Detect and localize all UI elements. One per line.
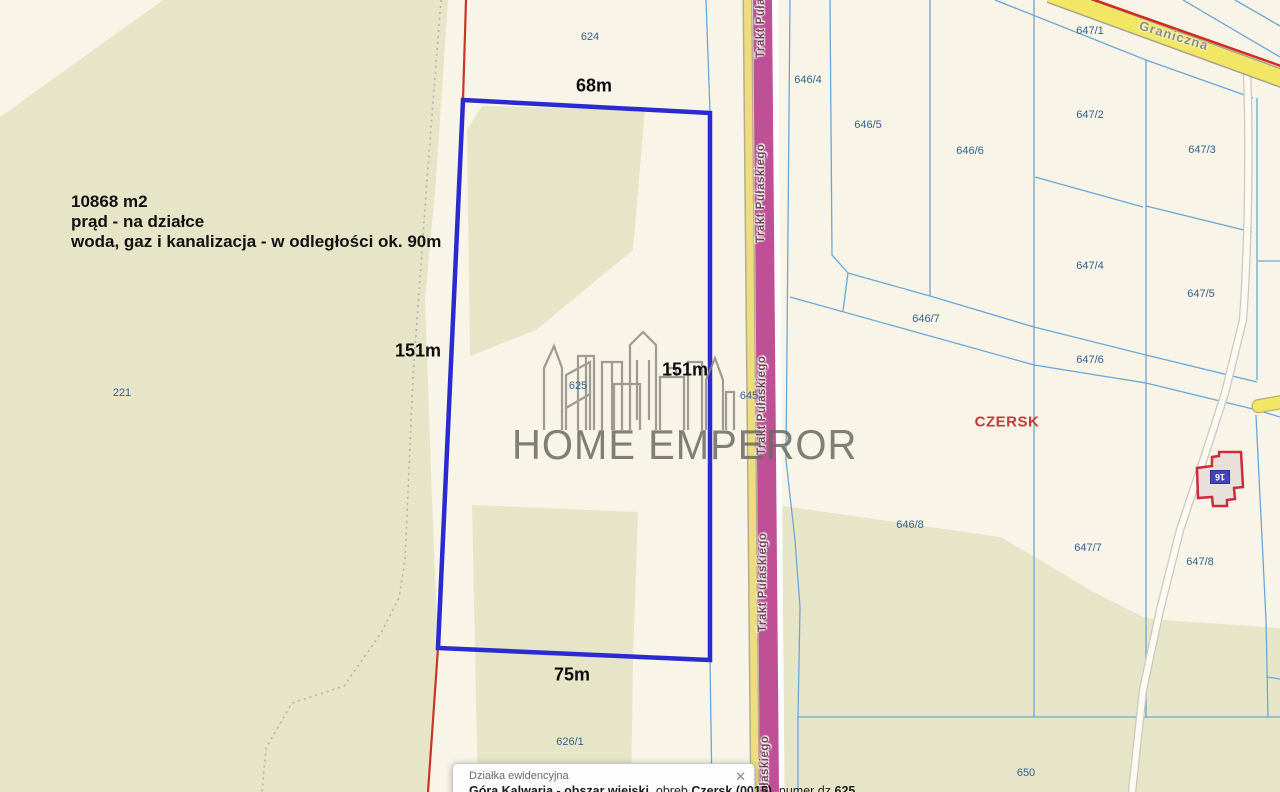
- property-info-block: 10868 m2 prąd - na działce woda, gaz i k…: [71, 192, 441, 252]
- popup-text-segment: Czersk (0015): [691, 784, 772, 792]
- property-utility-1: prąd - na działce: [71, 212, 441, 232]
- popup-text-segment: obręb: [656, 784, 691, 792]
- watermark-text: HOME EMPEROR: [512, 422, 772, 469]
- parcel-label: 647/6: [1076, 354, 1104, 366]
- dimension-label: 75m: [554, 665, 590, 686]
- parcel-label: 624: [581, 31, 599, 43]
- popup-parcel-description: Góra Kalwaria - obszar wiejski, obręb Cz…: [469, 784, 744, 792]
- parcel-label: 647/7: [1074, 542, 1102, 554]
- dimension-label: 151m: [662, 360, 708, 381]
- place-label-czersk: CZERSK: [975, 414, 1040, 431]
- map-viewport[interactable]: 10868 m2 prąd - na działce woda, gaz i k…: [0, 0, 1280, 792]
- parcel-label: 647/1: [1076, 25, 1104, 37]
- popup-text-segment: 625: [835, 784, 856, 792]
- parcel-info-popup: Działka ewidencyjna ✕ Góra Kalwaria - ob…: [452, 763, 755, 792]
- parcel-label: 647/4: [1076, 260, 1104, 272]
- parcel-label: 626/1: [556, 736, 584, 748]
- road-label-trakt-pulaskiego: Trakt Pułaskiego: [755, 0, 767, 58]
- property-utility-2: woda, gaz i kanalizacja - w odległości o…: [71, 232, 441, 252]
- parcel-label: 647/5: [1187, 288, 1215, 300]
- parcel-label: 647/2: [1076, 109, 1104, 121]
- parcel-label: 647/3: [1188, 144, 1216, 156]
- building-number-badge: 16: [1210, 470, 1230, 484]
- parcel-label: 646/6: [956, 145, 984, 157]
- parcel-label: 647/8: [1186, 556, 1214, 568]
- dimension-label: 151m: [395, 341, 441, 362]
- popup-title: Działka ewidencyjna: [469, 770, 744, 782]
- parcel-label: 625: [569, 380, 587, 392]
- popup-text-segment: numer dz.: [779, 784, 835, 792]
- parcel-label: 221: [113, 387, 131, 399]
- road-label-trakt-pulaskiego: Trakt Pułaskiego: [757, 533, 769, 632]
- parcel-label: 646/8: [896, 519, 924, 531]
- popup-text-segment: Góra Kalwaria - obszar wiejski: [469, 784, 649, 792]
- parcel-label: 650: [1017, 767, 1035, 779]
- road-label-trakt-pulaskiego: Trakt Pułaskiego: [755, 144, 767, 243]
- popup-text-segment: ,: [649, 784, 656, 792]
- property-area: 10868 m2: [71, 192, 441, 212]
- close-icon[interactable]: ✕: [735, 769, 746, 785]
- parcel-label: 646/5: [854, 119, 882, 131]
- parcel-label: 646/7: [912, 313, 940, 325]
- popup-text-segment: ,: [772, 784, 779, 792]
- parcel-label: 646/4: [794, 74, 822, 86]
- dimension-label: 68m: [576, 76, 612, 97]
